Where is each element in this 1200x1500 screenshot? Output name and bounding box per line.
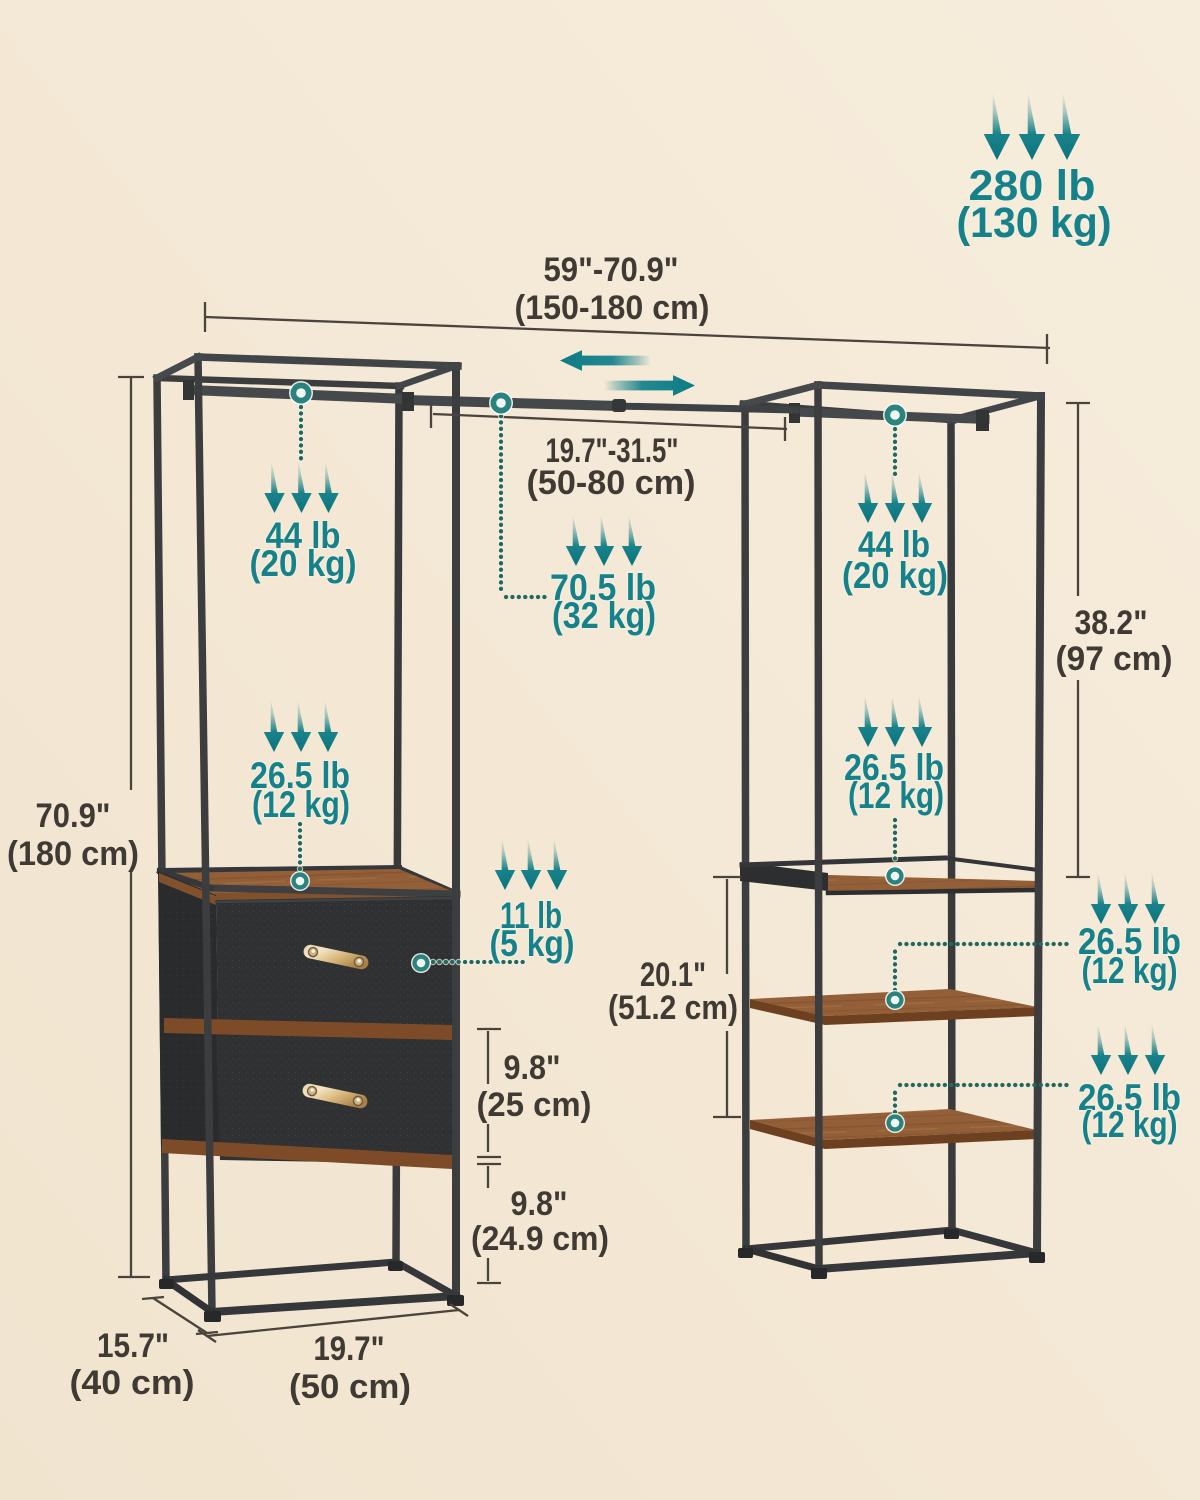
svg-text:(25 cm): (25 cm) — [477, 1086, 592, 1124]
svg-text:9.8": 9.8" — [511, 1185, 568, 1223]
svg-text:(180 cm): (180 cm) — [7, 835, 139, 873]
svg-text:(50-80 cm): (50-80 cm) — [527, 464, 696, 502]
svg-text:(130 kg): (130 kg) — [957, 199, 1112, 247]
svg-text:59"-70.9": 59"-70.9" — [544, 251, 679, 289]
svg-text:(150-180 cm): (150-180 cm) — [515, 289, 710, 327]
svg-text:(32 kg): (32 kg) — [552, 595, 656, 636]
svg-text:(5 kg): (5 kg) — [490, 923, 575, 964]
svg-text:(24.9 cm): (24.9 cm) — [471, 1220, 609, 1258]
svg-text:(12 kg): (12 kg) — [1082, 950, 1178, 991]
svg-text:(20 kg): (20 kg) — [842, 555, 948, 596]
svg-text:(20 kg): (20 kg) — [250, 543, 357, 584]
svg-text:38.2": 38.2" — [1075, 604, 1148, 642]
svg-text:19.7": 19.7" — [314, 1330, 385, 1368]
svg-text:70.9": 70.9" — [36, 797, 111, 835]
svg-text:(12 kg): (12 kg) — [848, 775, 944, 816]
svg-text:(12 kg): (12 kg) — [1082, 1104, 1178, 1145]
svg-text:15.7": 15.7" — [97, 1327, 169, 1365]
svg-text:(12 kg): (12 kg) — [252, 784, 350, 825]
svg-text:(40 cm): (40 cm) — [70, 1364, 195, 1402]
svg-text:9.8": 9.8" — [504, 1049, 561, 1087]
svg-text:(51.2 cm): (51.2 cm) — [608, 989, 738, 1027]
svg-text:(50 cm): (50 cm) — [289, 1368, 411, 1406]
svg-text:(97 cm): (97 cm) — [1056, 640, 1173, 678]
